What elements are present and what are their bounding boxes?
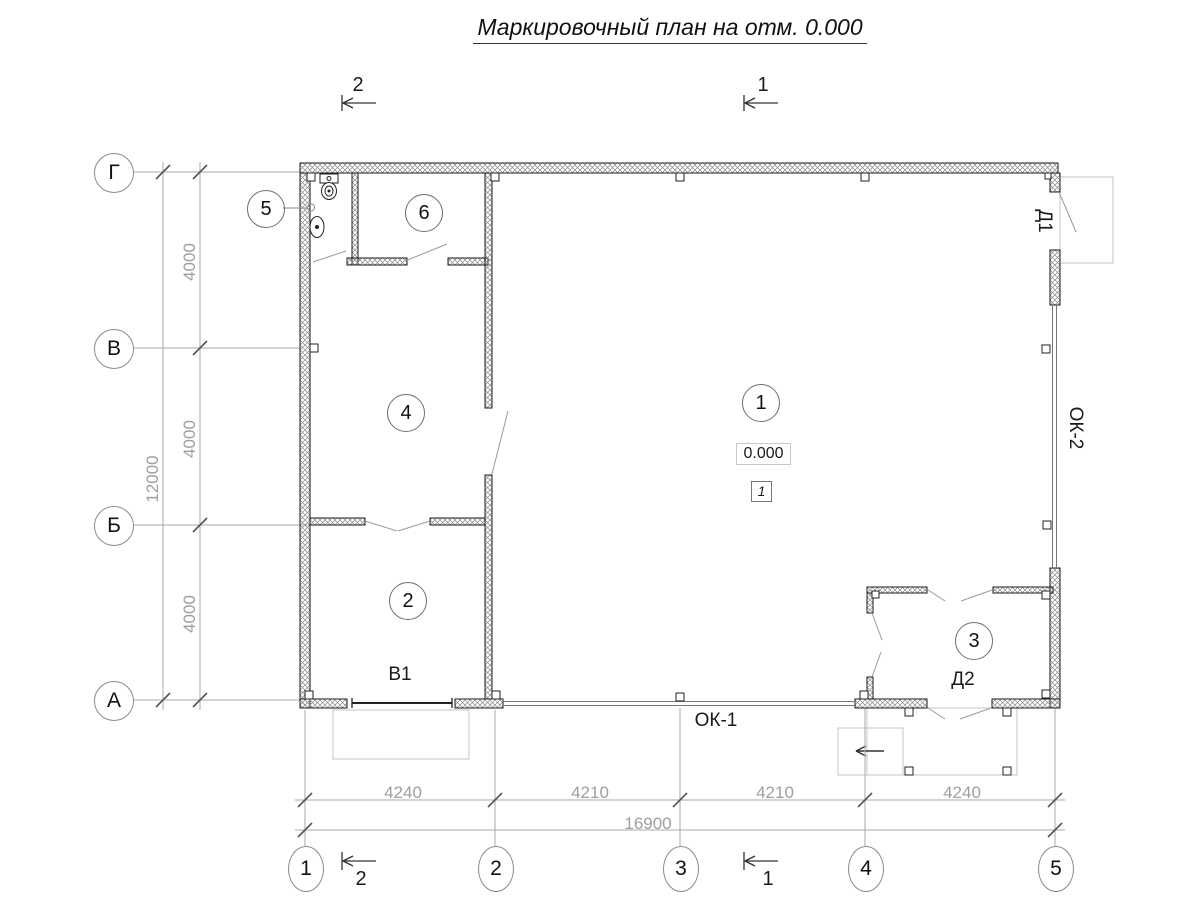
drawing-title-text: Маркировочный план на отм. 0.000 [473,14,866,44]
drawing-title: Маркировочный план на отм. 0.000 [420,14,920,44]
section-label-bottom-1: 1 [757,868,779,891]
dimension-ticks [156,165,1062,837]
room-bubble-6: 6 [405,194,443,232]
section-label-bottom-2: 2 [350,868,372,891]
gate-apron [333,710,469,759]
section-label-top-2: 2 [347,74,369,97]
room-bubble-2: 2 [389,582,427,620]
dim-bottom-segment-4: 4240 [927,783,997,803]
sink-icon [310,217,324,238]
window-ok1 [503,702,855,706]
door-swing-zone-d1 [1060,177,1113,263]
dim-left-total: 12000 [143,439,163,519]
gate-b1-symbol [352,698,452,708]
axis-bubble-3: 3 [663,846,699,892]
axis-bubble-2: 2 [478,846,514,892]
dim-left-segment-2: 4000 [180,409,200,469]
axis-bubble-a: А [94,681,134,721]
axis-bubble-5: 5 [1038,846,1074,892]
room-bubble-4: 4 [387,394,425,432]
exterior-walls [300,163,1060,708]
axis-bubble-b: Б [94,506,134,546]
label-window-ok1: ОК-1 [691,710,741,732]
drawing-canvas: Маркировочный план на отм. 0.000 2 1 2 1… [0,0,1200,900]
dim-bottom-segment-3: 4210 [740,783,810,803]
window-ok2 [1053,305,1057,568]
room-bubble-3: 3 [955,622,993,660]
axis-bubble-4: 4 [848,846,884,892]
label-gate-b1: В1 [384,664,416,686]
dim-bottom-total: 16900 [613,814,683,834]
section-label-top-1: 1 [752,74,774,97]
label-window-ok2: ОК-2 [1064,402,1086,454]
axis-bubble-v: В [94,329,134,369]
dim-left-segment-3: 4000 [180,584,200,644]
dim-bottom-segment-1: 4240 [368,783,438,803]
axis-bubble-g: Г [94,153,134,193]
room-bubble-5: 5 [247,190,285,228]
toilet-icon [320,174,338,200]
room-bubble-1: 1 [742,384,780,422]
pilasters [305,173,1051,775]
interior-walls [310,173,1053,699]
dim-bottom-segment-2: 4210 [555,783,625,803]
dimension-lines [132,162,1065,846]
elevation-mark: 0.000 [736,443,791,465]
label-door-d1: Д1 [1033,205,1055,237]
axis-bubble-1: 1 [288,846,324,892]
zone-mark: 1 [751,481,772,502]
dim-left-segment-1: 4000 [180,232,200,292]
label-door-d2: Д2 [947,669,979,691]
entrance-direction-arrow-icon [856,746,884,756]
